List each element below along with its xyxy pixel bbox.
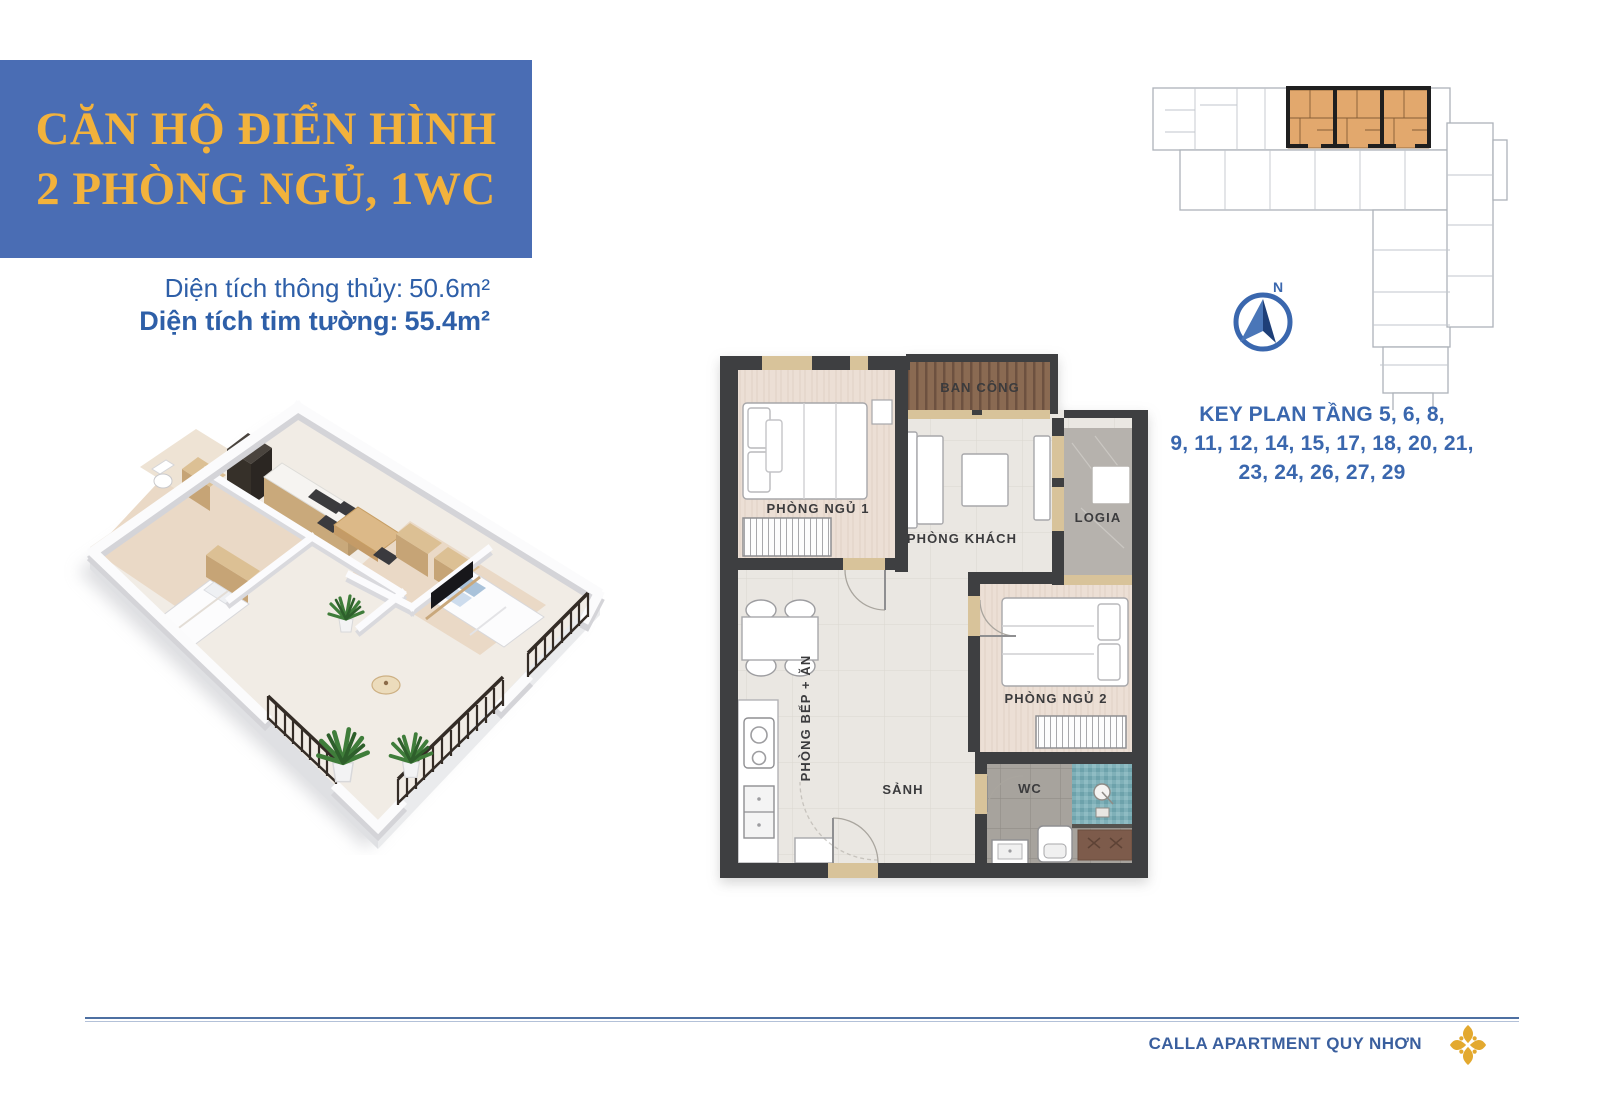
apartment-3d-render — [60, 375, 680, 855]
label-hall: SẢNH — [882, 782, 923, 797]
key-plan-caption-line3: 23, 24, 26, 27, 29 — [1157, 458, 1487, 487]
title-line-1: CĂN HỘ ĐIỂN HÌNH — [35, 99, 496, 159]
label-balcony: BAN CÔNG — [940, 380, 1020, 395]
key-plan-caption-line2: 9, 11, 12, 14, 15, 17, 18, 20, 21, — [1157, 429, 1487, 458]
area-summary: Diện tích thông thủy:50.6m² Diện tích ti… — [0, 272, 490, 338]
label-bedroom-1: PHÒNG NGỦ 1 — [766, 501, 869, 516]
key-plan-caption-line1: KEY PLAN TẦNG 5, 6, 8, — [1157, 400, 1487, 429]
title-banner: CĂN HỘ ĐIỂN HÌNH 2 PHÒNG NGỦ, 1WC — [0, 60, 532, 258]
wardrobe-1 — [743, 518, 831, 556]
compass-icon: N — [1236, 279, 1290, 349]
washer — [1092, 466, 1130, 504]
label-logia: LOGIA — [1075, 510, 1122, 525]
key-plan-diagram: N — [1125, 80, 1515, 410]
tv-console — [1034, 436, 1050, 520]
net-area-line: Diện tích thông thủy:50.6m² — [0, 272, 490, 305]
label-living-room: PHÒNG KHÁCH — [907, 531, 1017, 546]
floor-plan-2d: BAN CÔNG PHÒNG NGỦ 1 PHÒNG KHÁCH LOGIA P… — [700, 348, 1160, 888]
coffee-table — [962, 454, 1008, 506]
bed-2 — [1002, 598, 1128, 686]
label-bedroom-2: PHÒNG NGỦ 2 — [1004, 691, 1107, 706]
gross-area-value: 55.4m² — [398, 306, 490, 336]
label-kitchen-dining: PHÒNG BẾP + ĂN — [798, 655, 813, 782]
net-area-value: 50.6m² — [403, 273, 490, 303]
wc-mat — [1078, 830, 1132, 860]
footer-divider — [85, 1017, 1519, 1022]
nightstand — [872, 400, 892, 424]
bed-1 — [743, 403, 867, 499]
calla-flower-icon — [1449, 1023, 1487, 1067]
key-plan-highlight — [1286, 86, 1431, 148]
title-line-2: 2 PHÒNG NGỦ, 1WC — [36, 159, 496, 219]
wardrobe-2 — [1036, 716, 1126, 748]
footer-brand: CALLA APARTMENT QUY NHƠN — [1149, 1034, 1422, 1054]
label-wc: WC — [1018, 781, 1042, 796]
key-plan-caption: KEY PLAN TẦNG 5, 6, 8, 9, 11, 12, 14, 15… — [1157, 400, 1487, 487]
north-label: N — [1273, 279, 1283, 295]
sofa — [903, 432, 943, 528]
page: { "page": { "background": "#ffffff" }, "… — [0, 0, 1600, 1111]
gross-area-line: Diện tích tim tường:55.4m² — [0, 305, 490, 338]
